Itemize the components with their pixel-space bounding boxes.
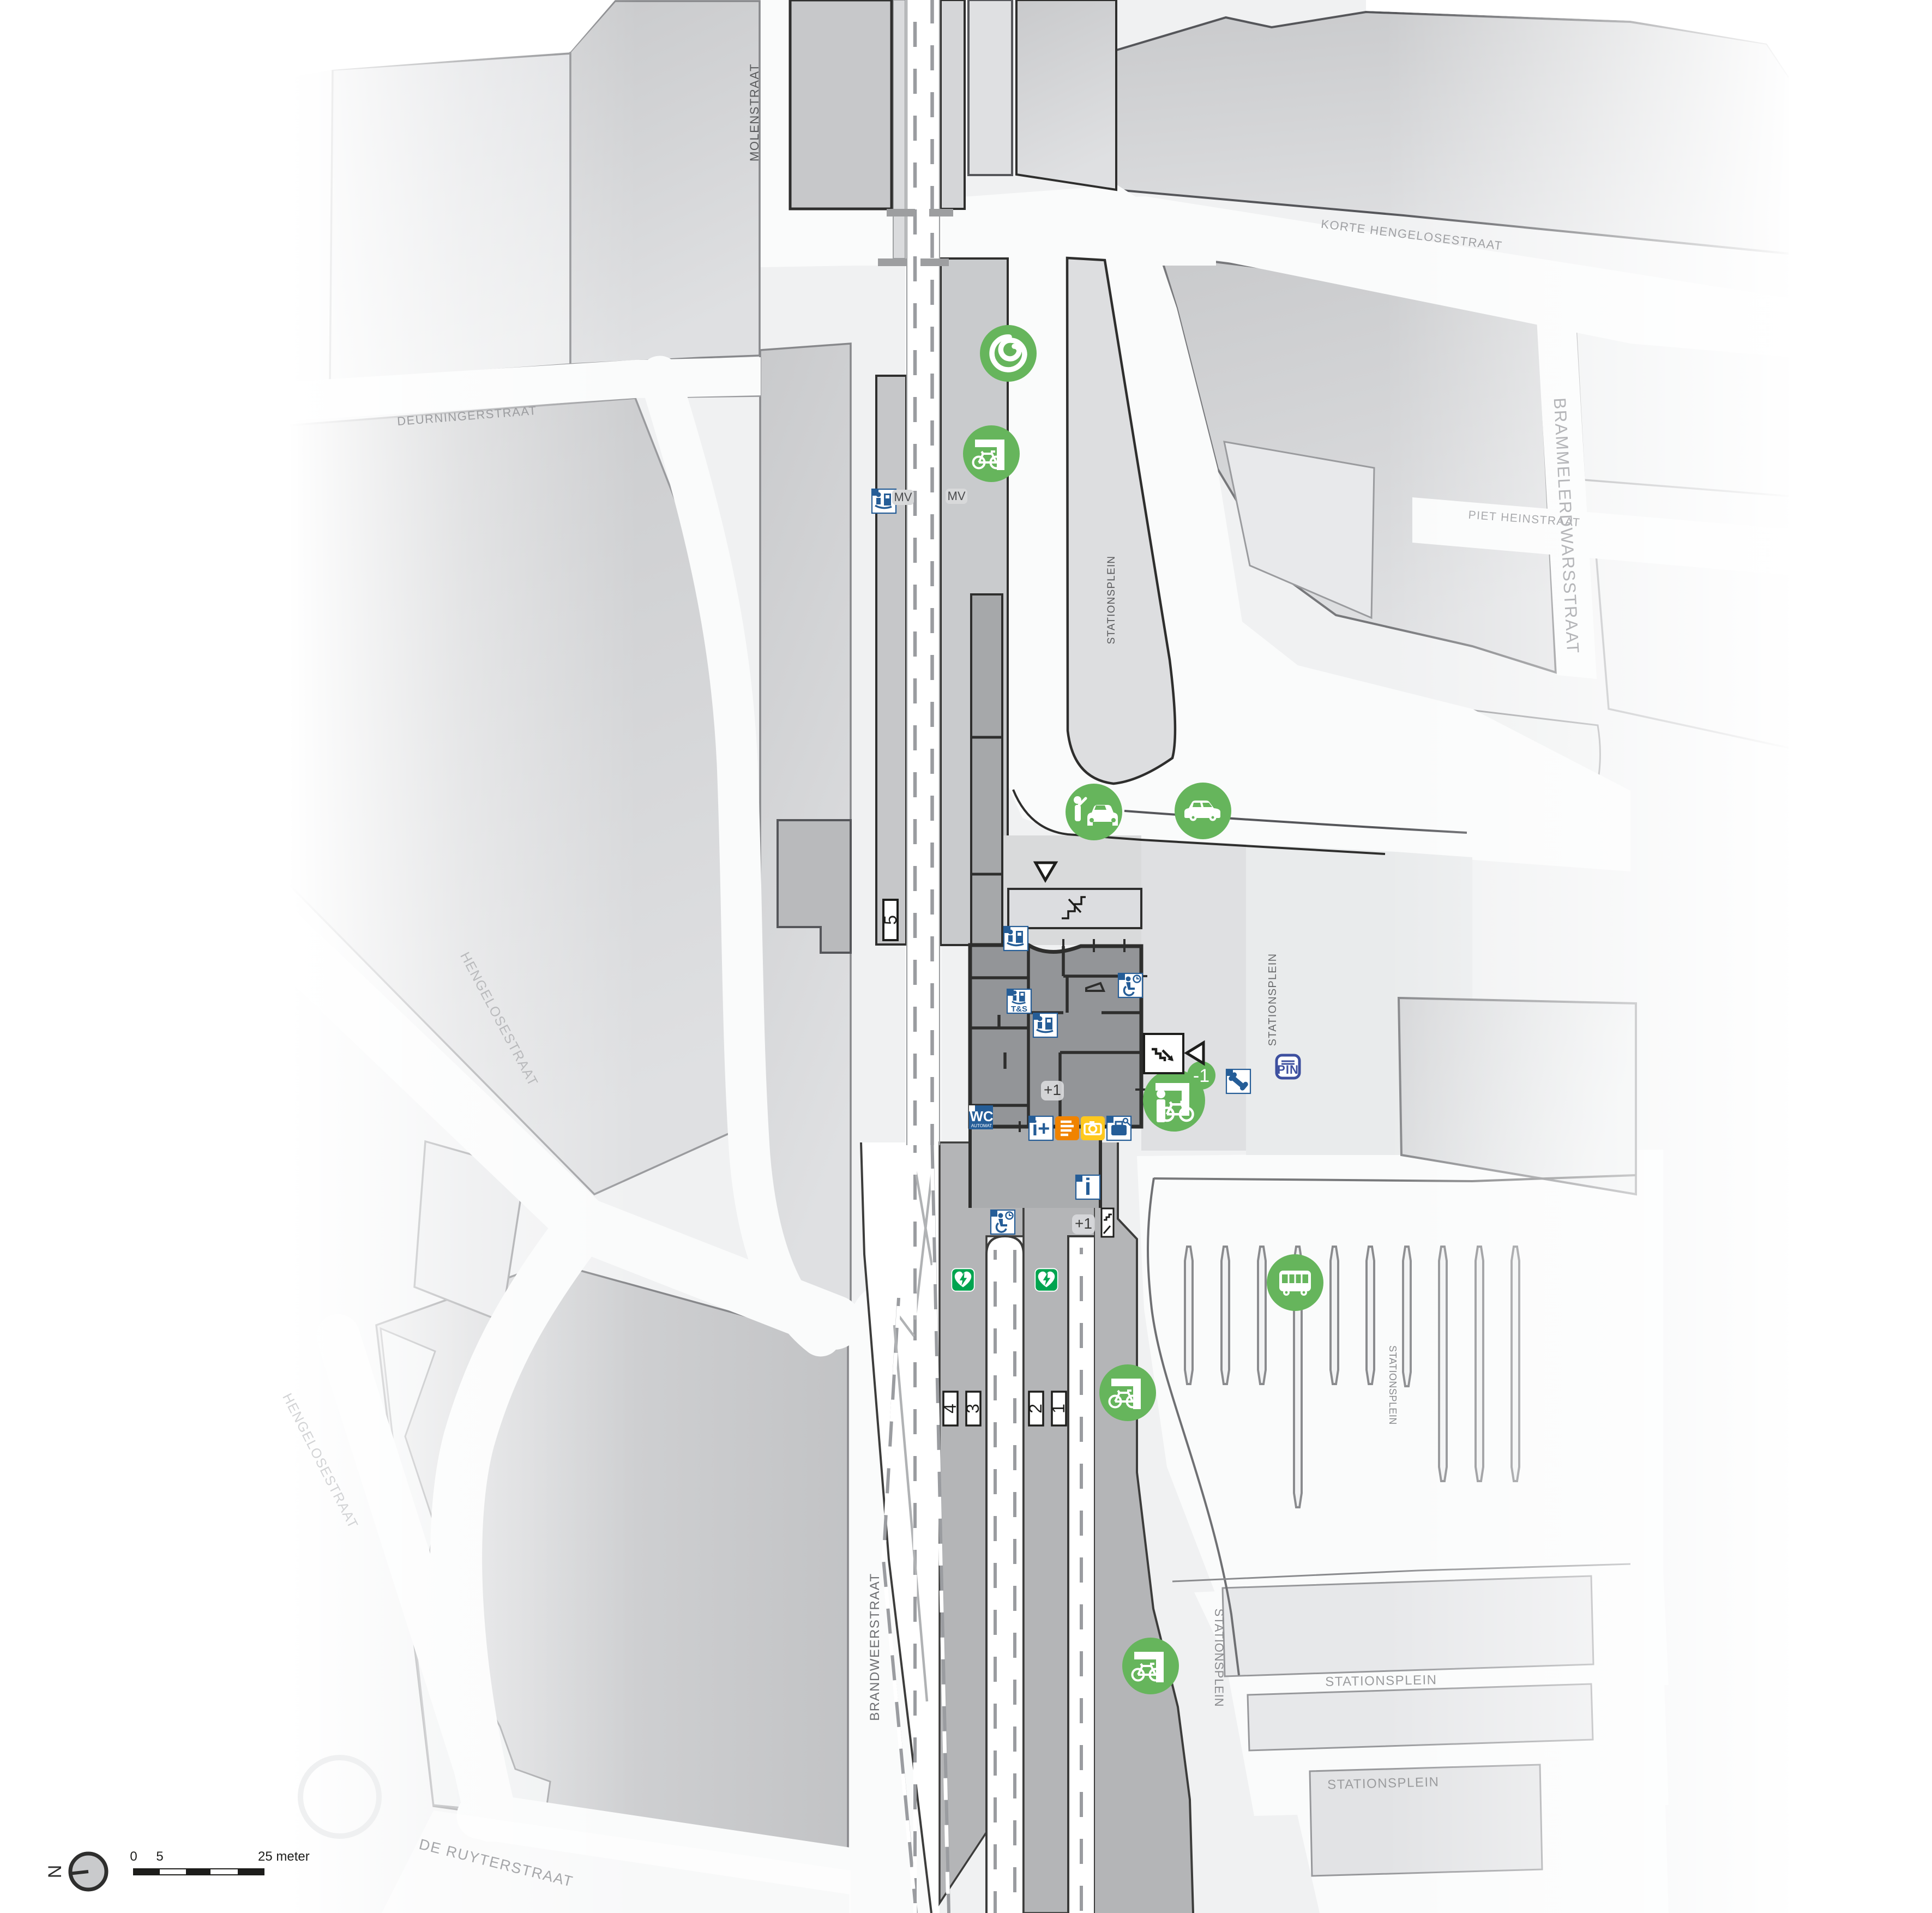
- svg-text:3: 3: [963, 1404, 983, 1413]
- svg-text:5: 5: [156, 1849, 163, 1864]
- svg-text:+1: +1: [1075, 1215, 1092, 1232]
- svg-text:MV: MV: [894, 490, 912, 504]
- svg-text:MOLENSTRAAT: MOLENSTRAAT: [748, 63, 761, 161]
- svg-text:i+: i+: [1032, 1117, 1050, 1140]
- svg-text:STATIONSPLEIN: STATIONSPLEIN: [1212, 1609, 1226, 1707]
- svg-text:PIN: PIN: [1277, 1063, 1299, 1076]
- svg-text:5: 5: [881, 915, 900, 925]
- svg-text:4: 4: [940, 1404, 960, 1413]
- svg-text:T&S: T&S: [1011, 1004, 1027, 1014]
- svg-text:0: 0: [130, 1849, 137, 1864]
- svg-text:1: 1: [1049, 1404, 1068, 1413]
- svg-text:-1: -1: [1193, 1066, 1209, 1086]
- svg-text:2: 2: [1026, 1404, 1045, 1413]
- svg-text:+1: +1: [1044, 1081, 1061, 1098]
- svg-text:STATIONSPLEIN: STATIONSPLEIN: [1327, 1774, 1440, 1792]
- svg-text:STATIONSPLEIN: STATIONSPLEIN: [1267, 953, 1279, 1046]
- svg-text:N: N: [45, 1865, 65, 1879]
- svg-text:STATIONSPLEIN: STATIONSPLEIN: [1387, 1345, 1398, 1425]
- svg-text:25 meter: 25 meter: [258, 1849, 310, 1864]
- svg-text:BRANDWEERSTRAAT: BRANDWEERSTRAAT: [868, 1573, 882, 1721]
- svg-text:STATIONSPLEIN: STATIONSPLEIN: [1106, 556, 1117, 645]
- svg-text:STATIONSPLEIN: STATIONSPLEIN: [1325, 1673, 1437, 1689]
- svg-text:i: i: [1085, 1174, 1091, 1200]
- svg-text:AUTOMAT: AUTOMAT: [971, 1123, 992, 1128]
- svg-text:WC: WC: [970, 1108, 994, 1124]
- svg-text:MV: MV: [948, 489, 966, 503]
